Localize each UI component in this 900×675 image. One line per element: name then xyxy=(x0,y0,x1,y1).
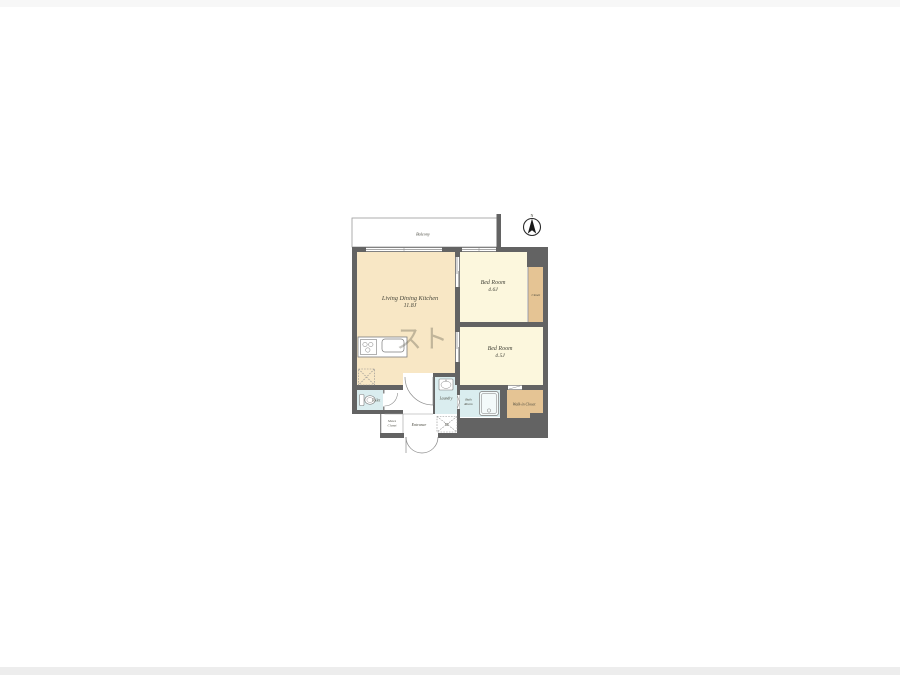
shoes-closet-label-line2: Closet xyxy=(388,423,398,427)
toilet-label: Toilet xyxy=(372,399,381,403)
closet-label: Closet xyxy=(531,293,541,297)
toilet-door-arc xyxy=(385,393,398,406)
ldk-label: Living Dining Kitchen xyxy=(381,295,438,302)
bedroom2-area-label: 4.5J xyxy=(495,353,505,359)
bedroom1-label: Bed Room xyxy=(481,280,506,286)
wic-label: Walk-in Closet xyxy=(513,403,537,407)
page-top-edge xyxy=(0,0,900,7)
watermark-text: スト xyxy=(396,325,448,355)
floor-plan-image: Balcony N xyxy=(300,185,600,490)
entrance-label: Entrance xyxy=(411,422,427,427)
page: Balcony N xyxy=(0,0,900,675)
bedroom2-label: Bed Room xyxy=(488,346,513,352)
bath-label-line2: Room xyxy=(463,402,473,406)
bathtub-icon xyxy=(480,392,499,416)
north-compass-icon: N xyxy=(524,213,541,235)
balcony-label: Balcony xyxy=(416,232,430,237)
ldk-door-arc xyxy=(405,377,433,405)
room-floors xyxy=(357,252,543,418)
ldk-area-label: 11.8J xyxy=(404,303,417,309)
page-bottom-edge xyxy=(0,667,900,675)
front-door-arc xyxy=(406,437,438,453)
laundry-sink-icon xyxy=(439,379,453,390)
balcony: Balcony xyxy=(352,214,501,247)
laundry-label: Laundry xyxy=(439,397,453,401)
floor-plan: Balcony N xyxy=(300,185,600,490)
bedroom1-area-label: 4.6J xyxy=(488,287,498,293)
compass-n-label: N xyxy=(531,213,534,218)
room-ldk-floor xyxy=(357,252,455,385)
shoes-closet-label-line1: Shoes xyxy=(388,419,397,423)
